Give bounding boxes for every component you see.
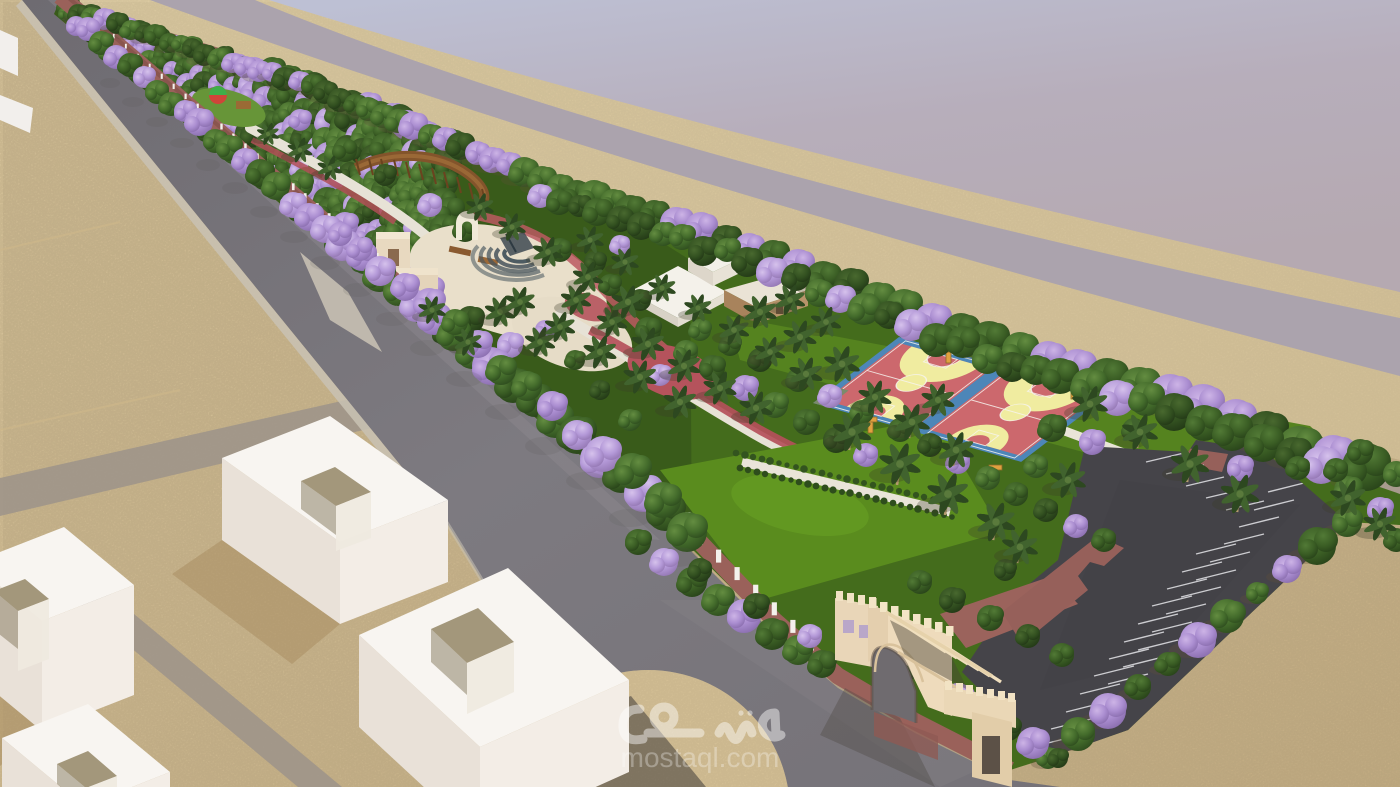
svg-text:mostaql.com: mostaql.com	[621, 742, 780, 773]
